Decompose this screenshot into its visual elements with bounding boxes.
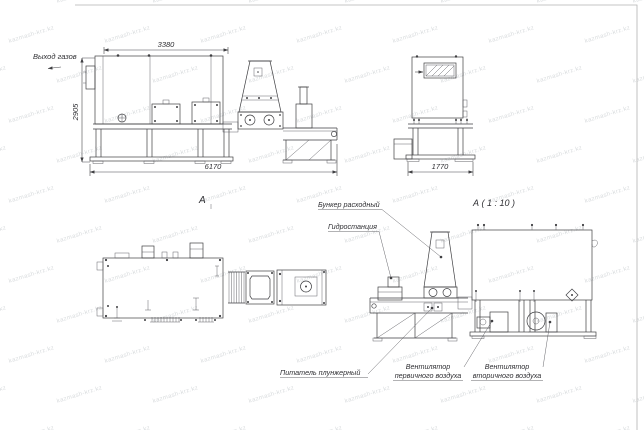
furnace-legs: [470, 300, 596, 339]
dim-2905: 2905: [71, 103, 80, 122]
end-body: [412, 55, 467, 118]
end-anchor-bolts: [413, 118, 468, 124]
dimension-3380: 3380: [104, 40, 228, 54]
secondary-fan-label-line2: вторичного воздуха: [473, 371, 541, 380]
plan-feeder-unit: [277, 270, 326, 305]
view-detail: А ( 1 : 10 ): [370, 198, 597, 341]
dimension-1770: 1770: [408, 162, 473, 176]
gas-outlet-flange: [86, 66, 95, 89]
feeder-label: Питатель плунжерный: [280, 368, 360, 377]
hydro-station: [378, 277, 402, 300]
callout-hydrostation: Гидростанция: [328, 222, 392, 279]
technical-drawing: 3380 2905 6170 Выход газов: [0, 0, 644, 430]
chamber-body: [83, 54, 223, 124]
plan-view-label: А: [198, 195, 206, 206]
furnace-body: [472, 224, 597, 302]
support-frame: [90, 122, 238, 164]
dimension-2905: 2905: [71, 58, 95, 162]
view-front: 3380 2905 6170 Выход газов: [33, 40, 337, 176]
hopper-tower: [238, 61, 283, 129]
detail-hopper-tower: [424, 232, 472, 309]
hydrostation-label: Гидростанция: [328, 222, 377, 231]
deck-boxes: [152, 98, 220, 124]
primary-fan-label-line2: первичного воздуха: [395, 371, 462, 380]
gas-outlet-callout: Выход газов: [33, 52, 77, 69]
plan-hopper: [246, 271, 274, 304]
detail-view-label: А ( 1 : 10 ): [472, 198, 515, 208]
end-frame: [394, 124, 475, 162]
secondary-air-fan: [527, 312, 558, 332]
sheet-border: [75, 5, 637, 430]
hopper-label: Бункер расходный: [318, 200, 380, 209]
primary-fan-label-line1: Вентилятор: [406, 362, 451, 371]
detail-conveyor: [370, 298, 468, 341]
plan-chamber: [97, 243, 223, 322]
secondary-fan-label-line1: Вентилятор: [485, 362, 530, 371]
callouts: Бункер расходный Гидростанция Питатель п…: [280, 200, 551, 381]
view-end: 1770: [394, 55, 475, 176]
drawing-sheet: kazmash-krz.kzkazmash-krz.kzkazmash-krz.…: [0, 0, 644, 430]
conveyor: [283, 87, 337, 163]
plan-grate-section: [228, 272, 245, 303]
dim-3380: 3380: [158, 40, 176, 49]
dim-6170: 6170: [205, 162, 223, 171]
view-plan: А: [97, 195, 326, 322]
gas-outlet-label: Выход газов: [33, 52, 77, 61]
dim-1770: 1770: [432, 162, 450, 171]
